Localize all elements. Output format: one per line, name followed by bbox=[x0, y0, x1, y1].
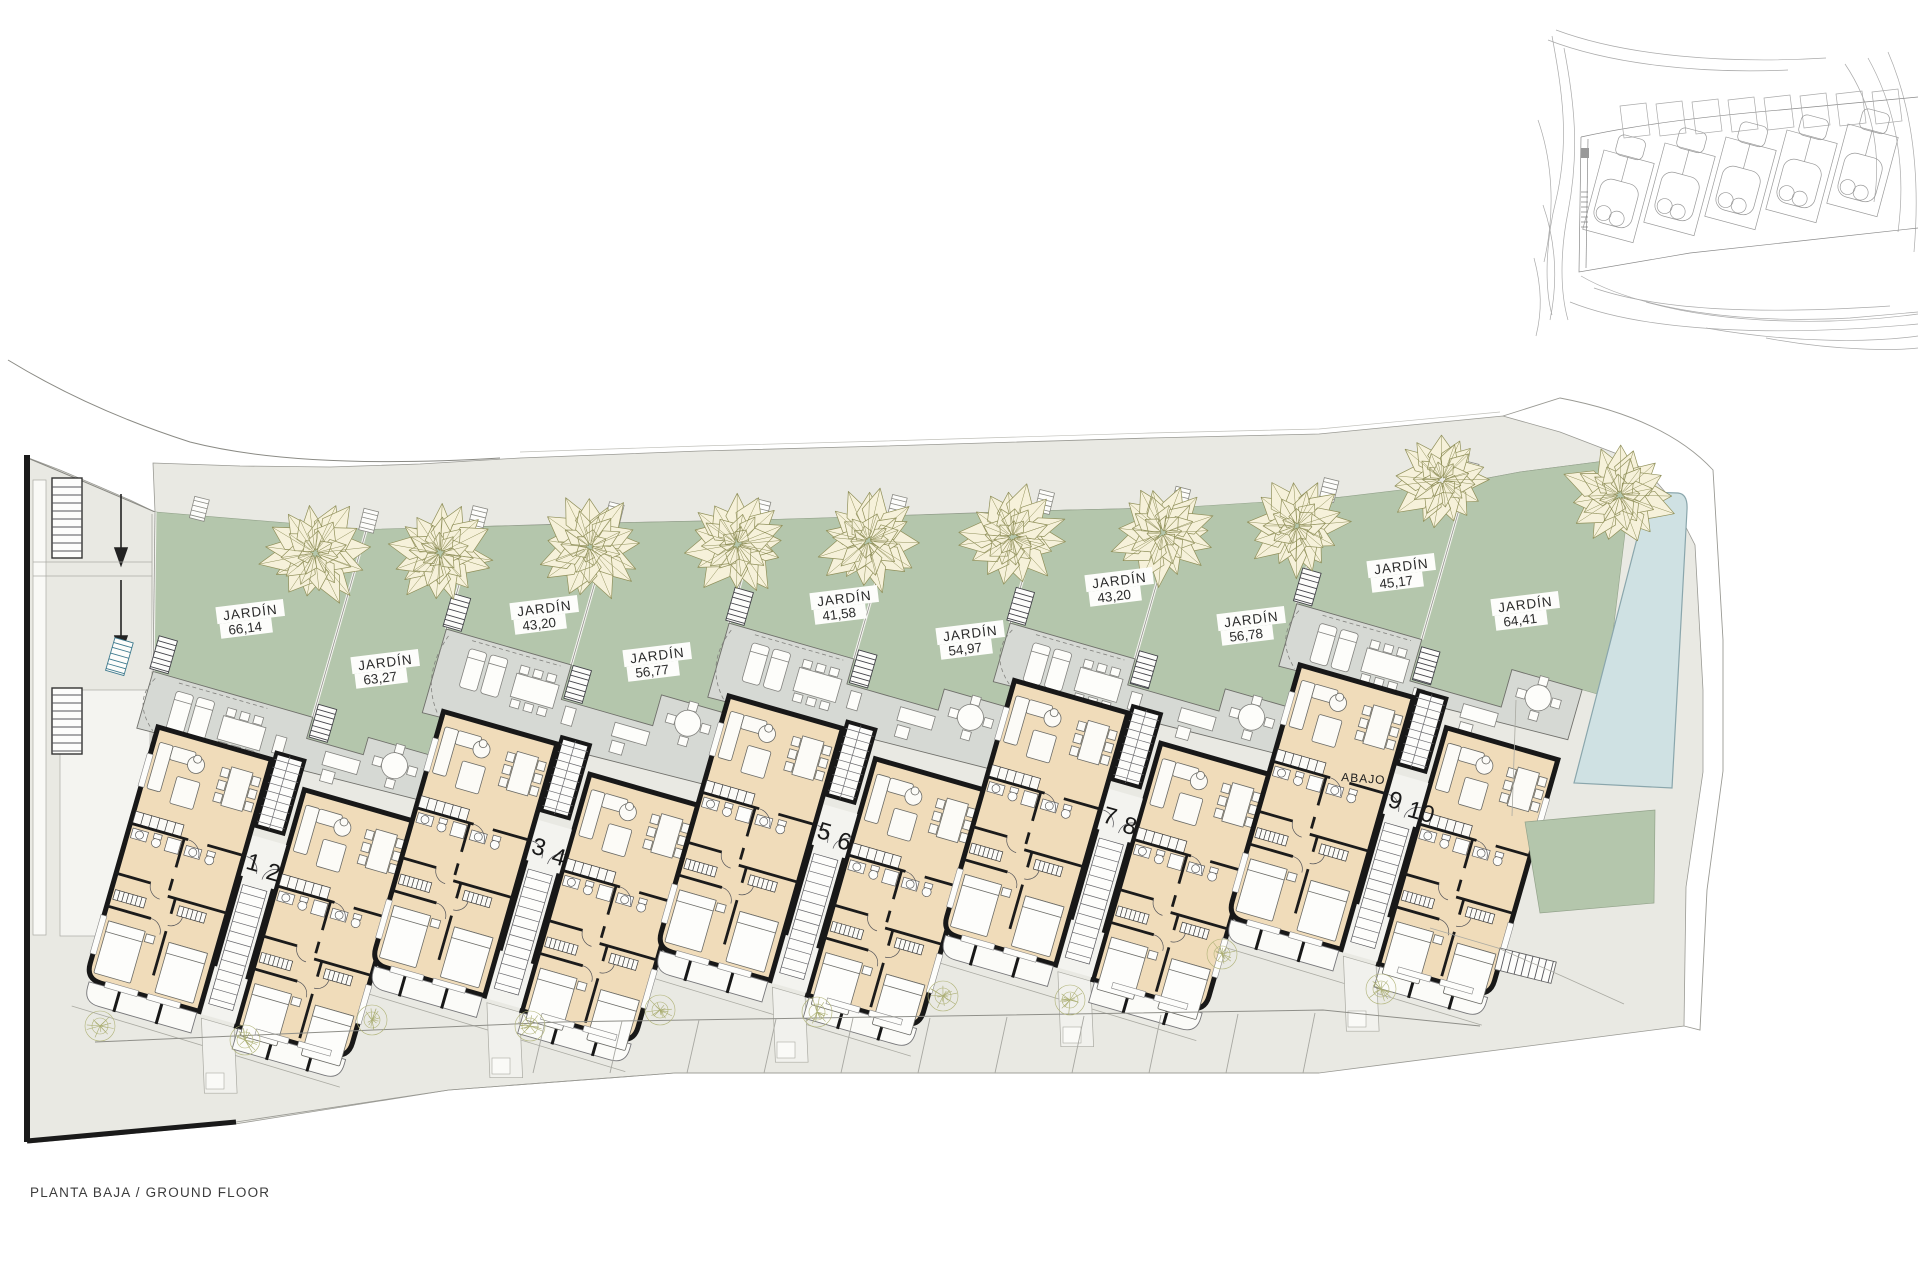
svg-text:PLANTA BAJA / GROUND FLOOR: PLANTA BAJA / GROUND FLOOR bbox=[30, 1185, 270, 1200]
